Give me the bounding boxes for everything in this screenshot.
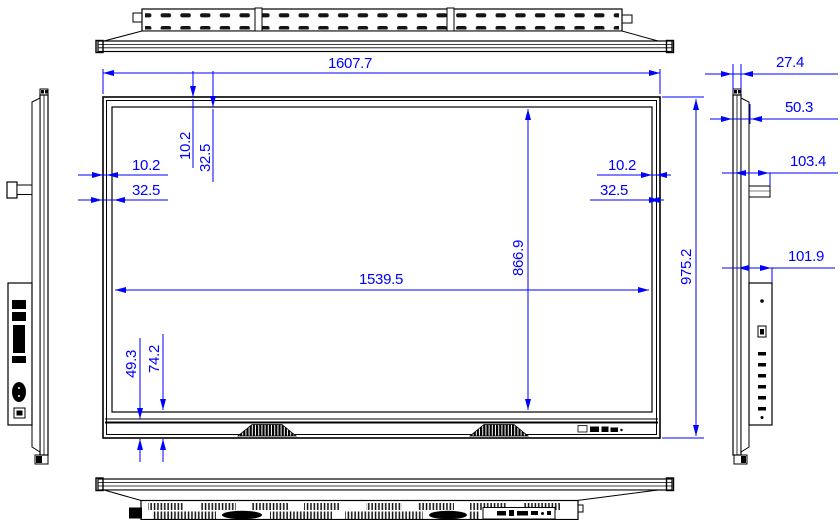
- bottom-view: [96, 478, 674, 520]
- dim-box-depth: 101.9: [788, 249, 824, 265]
- bottom-speaker-cutout: [222, 511, 262, 519]
- left-side-view: [7, 89, 48, 464]
- top-vent-slots: [145, 11, 619, 30]
- dim-bottom-offset-inner: 49.3: [124, 350, 140, 378]
- left-handle: [7, 182, 17, 198]
- dim-bracket-depth: 103.4: [790, 154, 826, 170]
- dim-top-offset-inner: 10.2: [178, 132, 194, 160]
- dim-right-offset-inner: 10.2: [608, 158, 636, 174]
- dim-top-offset-outer: 32.5: [198, 144, 214, 172]
- bottom-connector-panel: [483, 508, 555, 520]
- dim-active-width: 1539.5: [359, 272, 403, 288]
- left-connector-box: [8, 283, 32, 425]
- right-bracket: [749, 186, 770, 197]
- dim-left-offset-outer: 32.5: [132, 183, 160, 199]
- top-view: [96, 8, 674, 53]
- dim-right-offset-outer: 32.5: [600, 183, 628, 199]
- right-connector-box: [749, 283, 772, 425]
- dim-left-offset-inner: 10.2: [132, 158, 160, 174]
- dim-overall-height: 975.2: [679, 249, 695, 285]
- bottom-speaker-cutout: [429, 511, 467, 519]
- right-side-view: [733, 89, 772, 464]
- dim-active-height: 866.9: [511, 240, 527, 276]
- technical-drawing: 1607.7 975.2 1539.5 866.9 10.2 32.5 10.2…: [0, 0, 840, 520]
- dim-bottom-offset-outer: 74.2: [147, 345, 163, 373]
- dim-body-depth: 50.3: [785, 100, 813, 116]
- power-inlet: [12, 382, 26, 402]
- dim-panel-thickness: 27.4: [776, 55, 804, 71]
- dim-overall-width: 1607.7: [328, 56, 372, 72]
- drawing-linework: [0, 0, 840, 520]
